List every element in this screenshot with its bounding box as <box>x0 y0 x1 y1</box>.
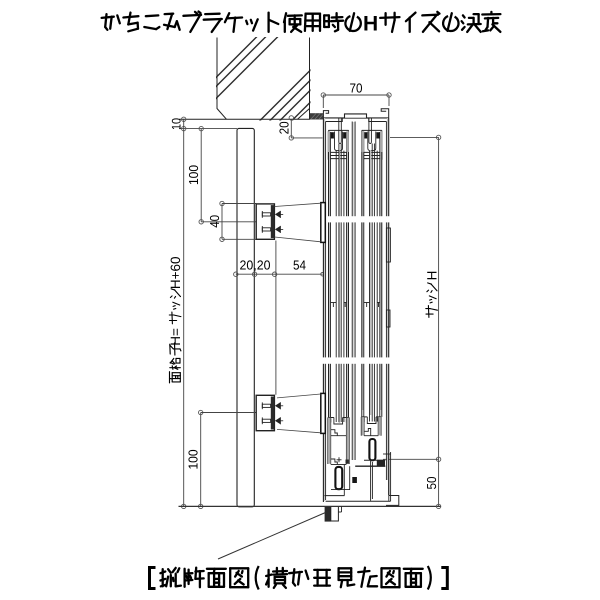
svg-text:70: 70 <box>350 81 363 96</box>
svg-text:H: H <box>425 271 440 281</box>
svg-text:10: 10 <box>170 118 184 130</box>
svg-text:100: 100 <box>186 450 201 470</box>
svg-text:54: 54 <box>293 258 306 273</box>
svg-text:20: 20 <box>277 121 292 134</box>
svg-text:H+60: H+60 <box>168 256 183 289</box>
svg-text:40: 40 <box>207 215 222 228</box>
svg-text:H=: H= <box>168 328 183 346</box>
svg-text:50: 50 <box>424 477 439 490</box>
svg-text:100: 100 <box>186 165 201 185</box>
svg-text:20,20: 20,20 <box>240 258 271 273</box>
svg-text:H: H <box>363 13 378 36</box>
